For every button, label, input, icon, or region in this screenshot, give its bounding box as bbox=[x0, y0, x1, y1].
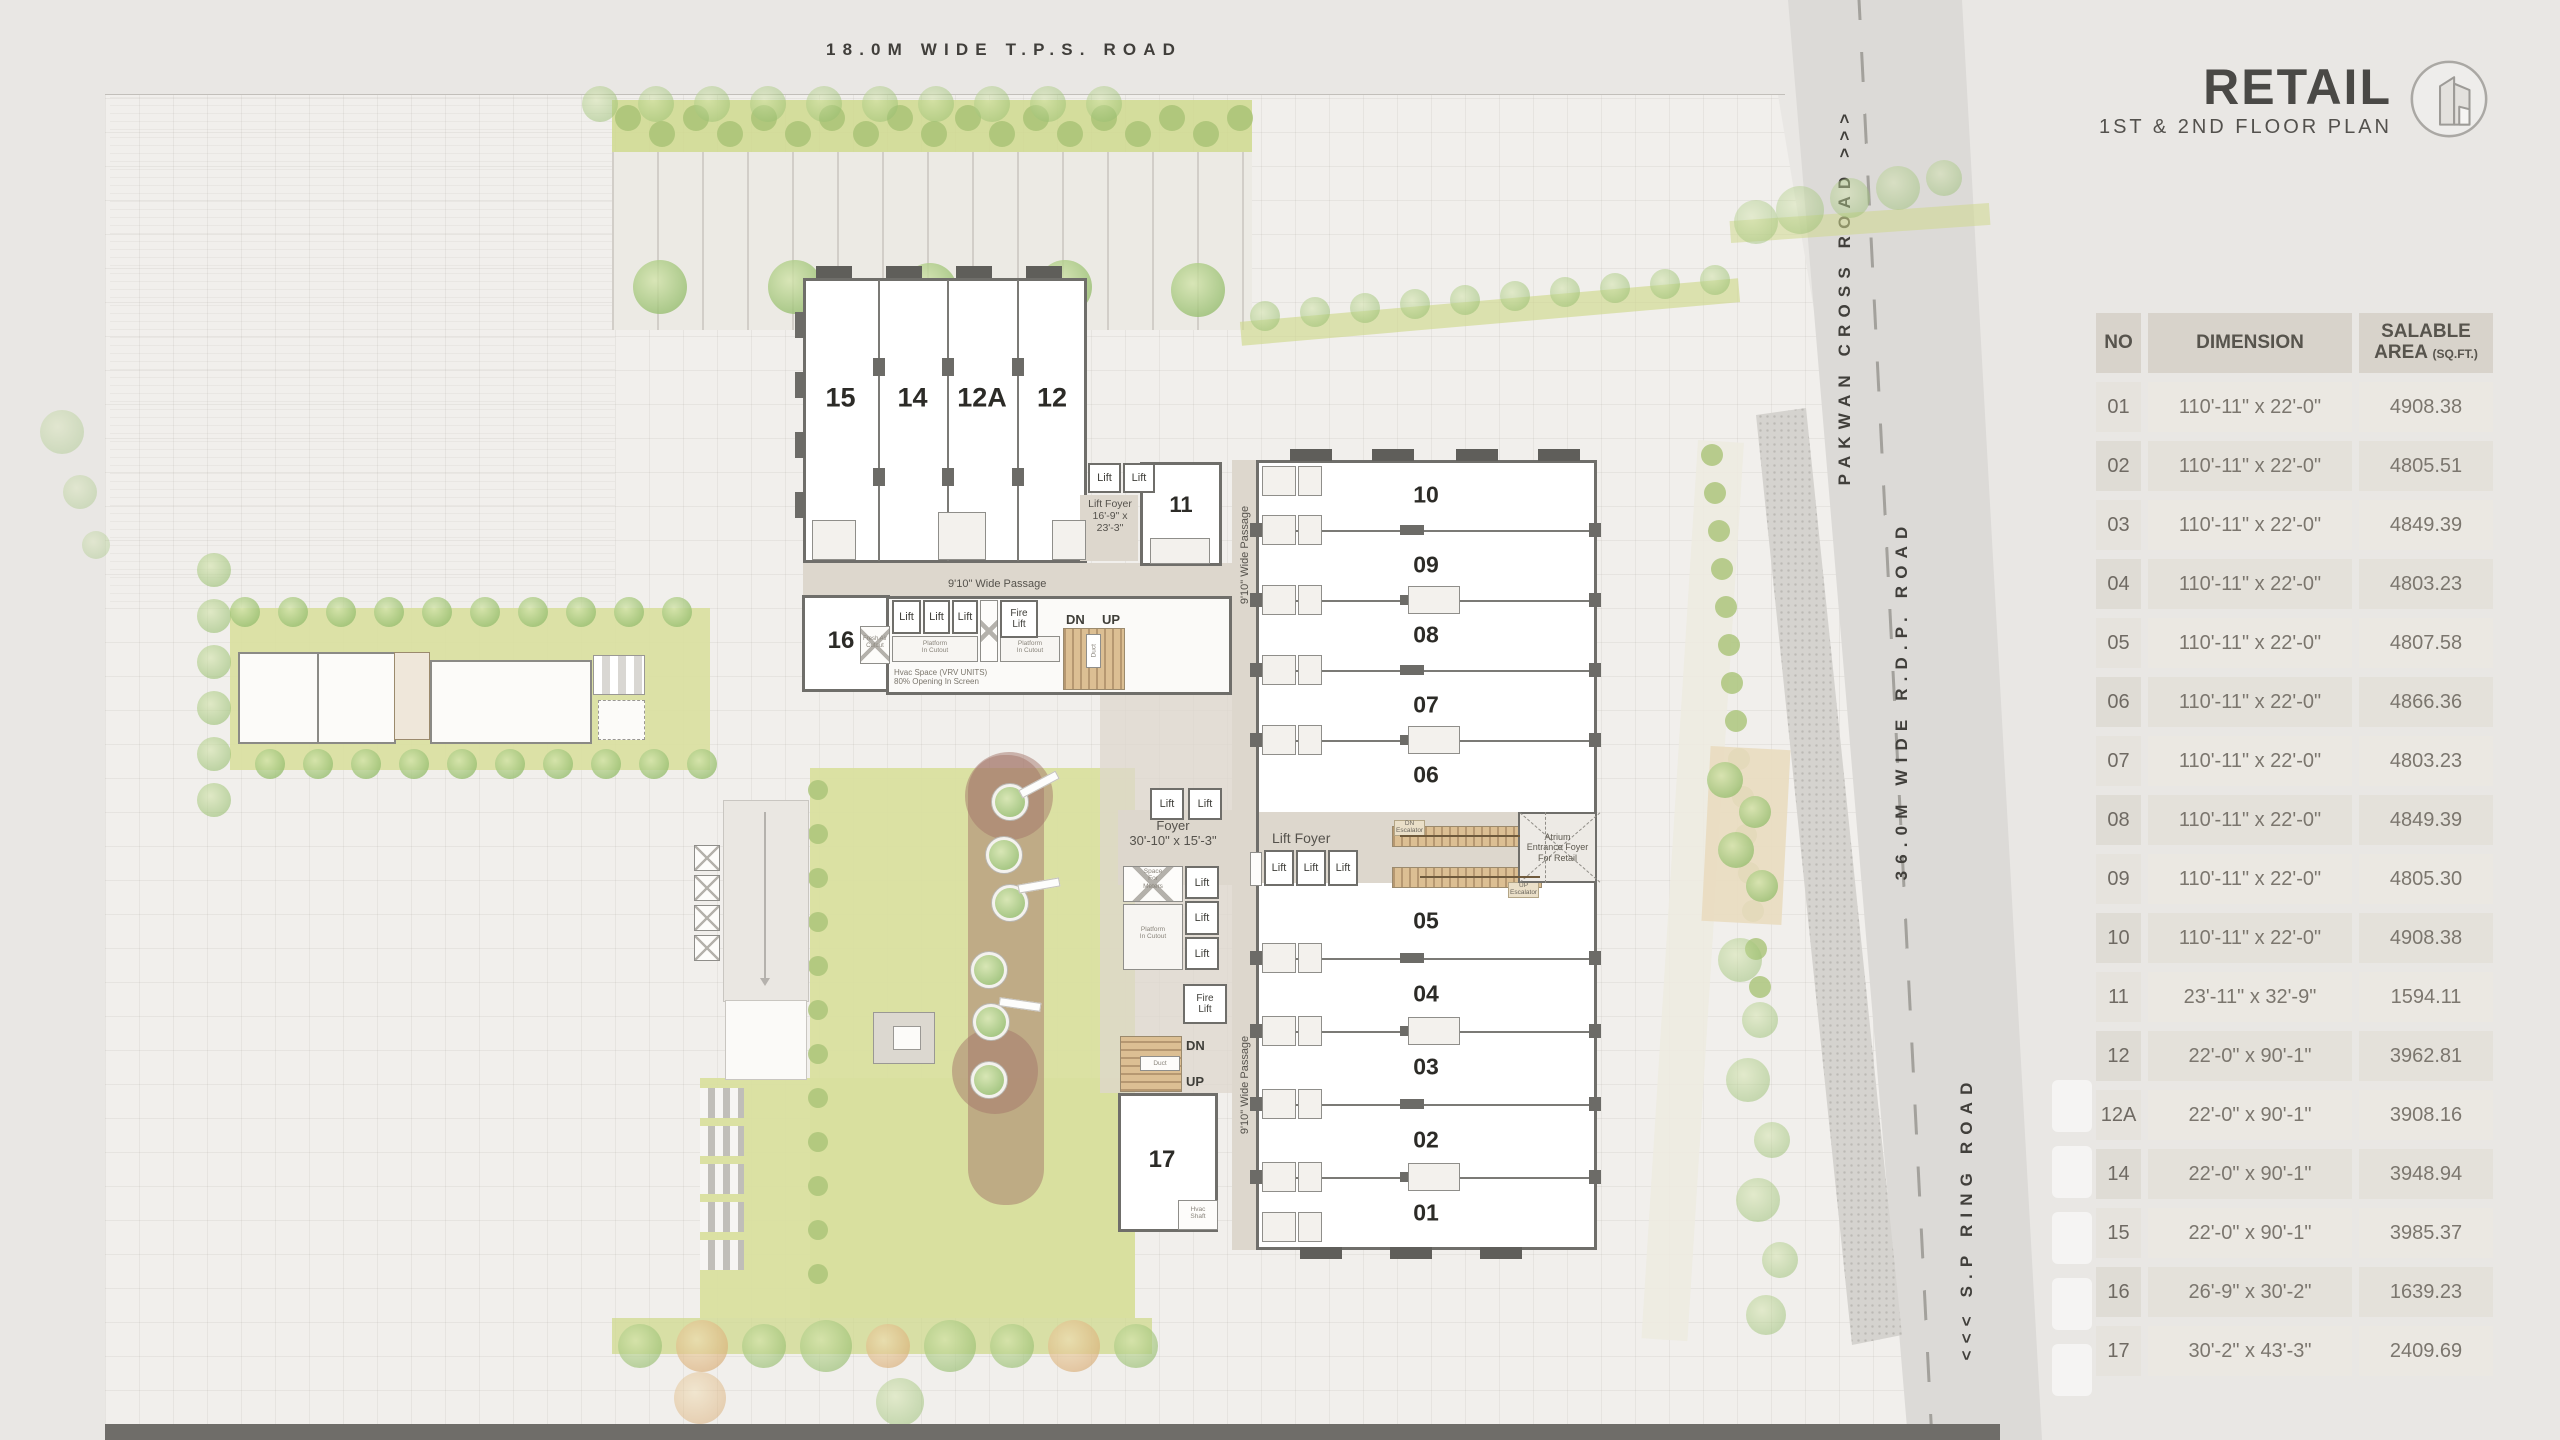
parking-stall-marks bbox=[700, 1240, 744, 1270]
toilet-cluster bbox=[1262, 943, 1296, 973]
cell-area: 4849.39 bbox=[2359, 500, 2493, 550]
bush bbox=[1701, 444, 1723, 466]
tree-orange bbox=[676, 1320, 728, 1372]
cell-area: 3962.81 bbox=[2359, 1031, 2493, 1081]
cell-area: 4908.38 bbox=[2359, 382, 2493, 432]
unit-label-10: 10 bbox=[1413, 482, 1439, 509]
wall-column bbox=[795, 492, 805, 518]
tree bbox=[694, 86, 730, 122]
bush bbox=[1227, 105, 1253, 131]
table-row: 07110'-11" x 22'-0"4803.23 bbox=[2096, 736, 2493, 786]
storefront-awning bbox=[816, 266, 852, 278]
tree bbox=[1718, 938, 1762, 982]
cell-no: 01 bbox=[2096, 382, 2141, 432]
wall-column bbox=[795, 372, 805, 398]
title-block: RETAIL 1ST & 2ND FLOOR PLAN bbox=[2080, 62, 2392, 139]
unit-label-01: 01 bbox=[1413, 1200, 1439, 1227]
unit-label-09: 09 bbox=[1413, 552, 1439, 579]
storefront-awning bbox=[1026, 266, 1062, 278]
toilet-cluster bbox=[1298, 725, 1322, 755]
bush bbox=[785, 121, 811, 147]
toilet-cluster bbox=[1298, 1162, 1322, 1192]
unit-label-14: 14 bbox=[897, 383, 927, 414]
garden-seat bbox=[694, 875, 720, 901]
lift-box: Lift bbox=[1296, 850, 1326, 886]
tree-orange bbox=[866, 1324, 910, 1368]
cell-no: 04 bbox=[2096, 559, 2141, 609]
outbuilding-room-2 bbox=[317, 652, 396, 744]
tree bbox=[1736, 1178, 1780, 1222]
tree bbox=[1030, 86, 1066, 122]
cell-dim: 26'-9" x 30'-2" bbox=[2148, 1267, 2352, 1317]
tree bbox=[750, 86, 786, 122]
column bbox=[1250, 1170, 1262, 1184]
cell-dim: 110'-11" x 22'-0" bbox=[2148, 618, 2352, 668]
column bbox=[873, 468, 885, 486]
cell-dim: 110'-11" x 22'-0" bbox=[2148, 854, 2352, 904]
roadside-parking-mark bbox=[2052, 1212, 2092, 1264]
toilet-cluster bbox=[1298, 943, 1322, 973]
unit-label-08: 08 bbox=[1413, 622, 1439, 649]
cell-dim: 22'-0" x 90'-1" bbox=[2148, 1090, 2352, 1140]
tree bbox=[800, 1320, 852, 1372]
tree bbox=[1171, 263, 1225, 317]
toilet-cluster bbox=[1262, 1162, 1296, 1192]
lift-box: Lift bbox=[1185, 937, 1219, 970]
tree bbox=[1114, 1324, 1158, 1368]
toilet-cluster bbox=[1262, 725, 1296, 755]
unit-label-07: 07 bbox=[1413, 692, 1439, 719]
tree bbox=[990, 1324, 1034, 1368]
cell-dim: 22'-0" x 90'-1" bbox=[2148, 1208, 2352, 1258]
bush bbox=[808, 1132, 828, 1152]
duct-upper-label: Duct bbox=[1090, 639, 1097, 663]
toilet-cluster bbox=[1298, 1089, 1322, 1119]
tree bbox=[862, 86, 898, 122]
outbuilding-room-1 bbox=[238, 652, 319, 744]
unit-label-03: 03 bbox=[1413, 1054, 1439, 1081]
parking-stall-marks bbox=[700, 1126, 744, 1156]
header-area: SALABLE AREA (SQ.FT.) bbox=[2359, 313, 2493, 373]
cell-dim: 110'-11" x 22'-0" bbox=[2148, 677, 2352, 727]
unit-label-05: 05 bbox=[1413, 908, 1439, 935]
toilet-cluster bbox=[1262, 466, 1296, 496]
cell-no: 08 bbox=[2096, 795, 2141, 845]
passage-label-h: 9'10" Wide Passage bbox=[948, 578, 1046, 590]
cell-area: 4866.36 bbox=[2359, 677, 2493, 727]
table-row: 03110'-11" x 22'-0"4849.39 bbox=[2096, 500, 2493, 550]
tree bbox=[1718, 832, 1754, 868]
bush bbox=[989, 121, 1015, 147]
foyer-label: Foyer 30'-10" x 15'-3" bbox=[1108, 818, 1238, 848]
column bbox=[1589, 733, 1601, 747]
tree bbox=[1776, 186, 1824, 234]
cell-area: 3985.37 bbox=[2359, 1208, 2493, 1258]
cell-area: 4805.51 bbox=[2359, 441, 2493, 491]
cell-dim: 22'-0" x 90'-1" bbox=[2148, 1031, 2352, 1081]
platform-label-1: Platform In Cutout bbox=[900, 640, 970, 655]
tree bbox=[989, 840, 1019, 870]
toilet-cluster bbox=[1408, 1163, 1460, 1191]
tree bbox=[614, 597, 644, 627]
column bbox=[1250, 523, 1262, 537]
lift-box: Lift bbox=[1188, 788, 1222, 820]
lift-box: Lift bbox=[952, 600, 978, 634]
tree bbox=[662, 597, 692, 627]
bush bbox=[1725, 710, 1747, 732]
toilet-cluster bbox=[1262, 515, 1296, 545]
tree bbox=[742, 1324, 786, 1368]
lift-box: Lift bbox=[1185, 866, 1219, 899]
toilet-cluster bbox=[1298, 1016, 1322, 1046]
wall-column bbox=[795, 312, 805, 338]
toilet-cluster bbox=[1298, 655, 1322, 685]
column bbox=[873, 358, 885, 376]
lift-foyer-label: Lift Foyer bbox=[1272, 830, 1330, 846]
header-no: NO bbox=[2096, 313, 2141, 373]
tree bbox=[447, 749, 477, 779]
cell-dim: 22'-0" x 90'-1" bbox=[2148, 1149, 2352, 1199]
header-dimension: DIMENSION bbox=[2148, 313, 2352, 373]
bush bbox=[1715, 596, 1737, 618]
table-row: 10110'-11" x 22'-0"4908.38 bbox=[2096, 913, 2493, 963]
bush bbox=[1193, 121, 1219, 147]
cell-dim: 110'-11" x 22'-0" bbox=[2148, 441, 2352, 491]
column bbox=[1589, 663, 1601, 677]
storefront-awning bbox=[1290, 449, 1332, 461]
tree bbox=[303, 749, 333, 779]
page-title: RETAIL bbox=[2080, 62, 2392, 112]
column bbox=[1589, 1097, 1601, 1111]
table-row: 1123'-11" x 32'-9"1594.11 bbox=[2096, 972, 2493, 1022]
tree bbox=[63, 475, 97, 509]
tree bbox=[197, 553, 231, 587]
cell-dim: 110'-11" x 22'-0" bbox=[2148, 559, 2352, 609]
column bbox=[1589, 593, 1601, 607]
storefront-awning bbox=[1372, 449, 1414, 461]
tree bbox=[618, 1324, 662, 1368]
table-row: 12A22'-0" x 90'-1"3908.16 bbox=[2096, 1090, 2493, 1140]
road-label-tps: 18.0M WIDE T.P.S. ROAD bbox=[826, 40, 1182, 60]
bush bbox=[615, 105, 641, 131]
lift-box: Lift bbox=[1185, 901, 1219, 935]
bush bbox=[808, 1176, 828, 1196]
bush bbox=[808, 1044, 828, 1064]
column bbox=[1589, 1024, 1601, 1038]
cell-area: 2409.69 bbox=[2359, 1326, 2493, 1376]
column bbox=[1250, 1024, 1262, 1038]
tree bbox=[1350, 293, 1380, 323]
column bbox=[1589, 951, 1601, 965]
bush bbox=[808, 780, 828, 800]
tree bbox=[518, 597, 548, 627]
table-body: 01110'-11" x 22'-0"4908.3802110'-11" x 2… bbox=[2096, 382, 2493, 1376]
passage-label-v1: 9'10" Wide Passage bbox=[1239, 506, 1251, 604]
bush bbox=[808, 956, 828, 976]
tree bbox=[1746, 1295, 1786, 1335]
cell-area: 3948.94 bbox=[2359, 1149, 2493, 1199]
cell-dim: 110'-11" x 22'-0" bbox=[2148, 500, 2352, 550]
column bbox=[1589, 523, 1601, 537]
paving-texture bbox=[110, 97, 615, 602]
fire-shaft-box bbox=[1250, 852, 1262, 886]
garden-seat bbox=[694, 845, 720, 871]
cell-area: 4805.30 bbox=[2359, 854, 2493, 904]
parking-stall-marks bbox=[700, 1088, 744, 1118]
table-row: 02110'-11" x 22'-0"4805.51 bbox=[2096, 441, 2493, 491]
lift-box: Lift bbox=[1150, 788, 1184, 820]
column bbox=[1400, 525, 1424, 535]
outbuilding-louvers bbox=[593, 655, 645, 695]
cell-no: 10 bbox=[2096, 913, 2141, 963]
unit-label-06: 06 bbox=[1413, 762, 1439, 789]
column bbox=[1250, 593, 1262, 607]
cell-no: 15 bbox=[2096, 1208, 2141, 1258]
escalator-up-label: UP Escalator bbox=[1508, 882, 1539, 898]
stair-lower-up: UP bbox=[1186, 1074, 1204, 1089]
lift-box: Lift bbox=[1328, 850, 1358, 886]
tree bbox=[197, 599, 231, 633]
bush bbox=[1749, 976, 1771, 998]
tree bbox=[1762, 1242, 1798, 1278]
unit-label-15: 15 bbox=[825, 383, 855, 414]
unit-divider bbox=[1017, 280, 1019, 561]
table-row: 06110'-11" x 22'-0"4866.36 bbox=[2096, 677, 2493, 727]
toilet-cluster bbox=[1408, 1017, 1460, 1045]
tree bbox=[974, 955, 1004, 985]
toilet-cluster bbox=[1262, 655, 1296, 685]
table-row: 08110'-11" x 22'-0"4849.39 bbox=[2096, 795, 2493, 845]
cell-no: 12A bbox=[2096, 1090, 2141, 1140]
tree bbox=[633, 260, 687, 314]
tree bbox=[278, 597, 308, 627]
pool-deck bbox=[723, 800, 809, 1002]
toilet-cluster bbox=[1408, 726, 1460, 754]
unit-label-12: 12 bbox=[1037, 383, 1067, 414]
toilet-cluster bbox=[1150, 538, 1210, 564]
tree bbox=[687, 749, 717, 779]
column bbox=[1400, 953, 1424, 963]
tree bbox=[1734, 200, 1778, 244]
site-south-boundary bbox=[105, 1424, 2000, 1440]
stair-lower-dn: DN bbox=[1186, 1038, 1205, 1053]
storefront-awning bbox=[1300, 1247, 1342, 1259]
unit-label-17: 17 bbox=[1149, 1146, 1176, 1174]
table-row: 1422'-0" x 90'-1"3948.94 bbox=[2096, 1149, 2493, 1199]
lift-box: Lift bbox=[1088, 463, 1121, 493]
tree bbox=[638, 86, 674, 122]
cell-no: 03 bbox=[2096, 500, 2141, 550]
tree bbox=[1086, 86, 1122, 122]
toilet-cluster bbox=[1298, 585, 1322, 615]
tree bbox=[806, 86, 842, 122]
bush bbox=[808, 868, 828, 888]
column bbox=[1589, 1170, 1601, 1184]
tree bbox=[1746, 870, 1778, 902]
tree-orange bbox=[674, 1372, 726, 1424]
tree bbox=[197, 783, 231, 817]
toilet-cluster bbox=[1262, 1016, 1296, 1046]
tree bbox=[1700, 265, 1730, 295]
column bbox=[1400, 665, 1424, 675]
storefront-awning bbox=[1480, 1247, 1522, 1259]
storefront-awning bbox=[1456, 449, 1498, 461]
road-label-rdp: 36.0M WIDE R.D.P. ROAD bbox=[1892, 520, 1912, 881]
table-row: 04110'-11" x 22'-0"4803.23 bbox=[2096, 559, 2493, 609]
building-icon bbox=[2408, 58, 2490, 140]
toilet-cluster bbox=[1262, 585, 1296, 615]
storefront-awning bbox=[956, 266, 992, 278]
page-subtitle: 1ST & 2ND FLOOR PLAN bbox=[2080, 116, 2392, 139]
parking-stall-marks bbox=[700, 1202, 744, 1232]
tree bbox=[374, 597, 404, 627]
tree bbox=[639, 749, 669, 779]
bush bbox=[808, 1000, 828, 1020]
tree bbox=[1742, 1002, 1778, 1038]
cell-area: 1594.11 bbox=[2359, 972, 2493, 1022]
atrium-label: Atrium Entrance Foyer For Retail bbox=[1518, 832, 1597, 863]
lift-foyer-dim-label: Lift Foyer 16'-9" x 23'-3" bbox=[1080, 498, 1140, 534]
table-header-row: NO DIMENSION SALABLE AREA (SQ.FT.) bbox=[2096, 313, 2493, 373]
hvac-shaft-label: Hvac Shaft bbox=[1178, 1206, 1218, 1221]
column bbox=[1250, 733, 1262, 747]
tree bbox=[1754, 1122, 1790, 1158]
toilet-cluster bbox=[1052, 520, 1086, 560]
table-row: 1522'-0" x 90'-1"3985.37 bbox=[2096, 1208, 2493, 1258]
tree bbox=[1300, 297, 1330, 327]
cell-no: 02 bbox=[2096, 441, 2141, 491]
tree bbox=[197, 691, 231, 725]
bush bbox=[921, 121, 947, 147]
tree bbox=[566, 597, 596, 627]
stair-upper-up: UP bbox=[1102, 612, 1120, 627]
unit-label-16: 16 bbox=[828, 627, 855, 655]
retail-floor-plan-sheet: 18.0M WIDE T.P.S. ROAD PAKWAN CROSS ROAD… bbox=[0, 0, 2560, 1440]
pool-deck-arrow bbox=[760, 978, 770, 986]
cell-dim: 110'-11" x 22'-0" bbox=[2148, 736, 2352, 786]
cell-area: 3908.16 bbox=[2359, 1090, 2493, 1140]
stair-upper-dn: DN bbox=[1066, 612, 1085, 627]
toilet-cluster bbox=[1298, 1212, 1322, 1242]
tree bbox=[326, 597, 356, 627]
cell-no: 16 bbox=[2096, 1267, 2141, 1317]
cell-no: 06 bbox=[2096, 677, 2141, 727]
toilet-cluster bbox=[1262, 1089, 1296, 1119]
outbuilding-room-4 bbox=[598, 700, 645, 740]
column bbox=[1250, 1097, 1262, 1111]
unit-label-04: 04 bbox=[1413, 981, 1439, 1008]
toilet-cluster bbox=[1298, 515, 1322, 545]
column bbox=[1012, 358, 1024, 376]
tree bbox=[495, 749, 525, 779]
tree bbox=[591, 749, 621, 779]
lift-box: Lift bbox=[1123, 463, 1155, 493]
tree bbox=[1830, 178, 1870, 218]
bush bbox=[808, 1220, 828, 1240]
lift-box: Lift bbox=[923, 600, 950, 634]
hvac-label: Hvac Space (VRV UNITS) 80% Opening In Sc… bbox=[880, 668, 1054, 686]
roadside-parking-mark bbox=[2052, 1344, 2092, 1396]
platform-label-2: Platform In Cutout bbox=[1004, 640, 1056, 655]
toilet-cluster bbox=[938, 512, 986, 560]
tree bbox=[422, 597, 452, 627]
tree bbox=[582, 86, 618, 122]
tree bbox=[1707, 762, 1743, 798]
tree bbox=[1500, 281, 1530, 311]
cell-dim: 110'-11" x 22'-0" bbox=[2148, 795, 2352, 845]
bush bbox=[808, 1088, 828, 1108]
cell-area: 4803.23 bbox=[2359, 736, 2493, 786]
cell-area: 4807.58 bbox=[2359, 618, 2493, 668]
roadside-parking-mark bbox=[2052, 1080, 2092, 1132]
passage-label-v2: 9'10" Wide Passage bbox=[1239, 1036, 1251, 1134]
column bbox=[942, 468, 954, 486]
tree bbox=[1876, 166, 1920, 210]
cell-no: 12 bbox=[2096, 1031, 2141, 1081]
escalator-arrow bbox=[1420, 876, 1540, 878]
outbuilding-room-3 bbox=[430, 660, 592, 744]
tree bbox=[197, 645, 231, 679]
table-row: 05110'-11" x 22'-0"4807.58 bbox=[2096, 618, 2493, 668]
bush bbox=[1718, 634, 1740, 656]
bush bbox=[717, 121, 743, 147]
tree bbox=[543, 749, 573, 779]
fire-lift-box: Fire Lift bbox=[1183, 984, 1227, 1024]
tree bbox=[976, 1007, 1006, 1037]
table-row: 1222'-0" x 90'-1"3962.81 bbox=[2096, 1031, 2493, 1081]
storefront-awning bbox=[1390, 1247, 1432, 1259]
pool bbox=[725, 1000, 807, 1080]
road-label-ring: <<< S.P RING ROAD bbox=[1957, 1076, 1977, 1361]
tree bbox=[470, 597, 500, 627]
bush bbox=[1708, 520, 1730, 542]
tree bbox=[1250, 301, 1280, 331]
tree bbox=[974, 86, 1010, 122]
column bbox=[1400, 1099, 1424, 1109]
garden-seat bbox=[694, 905, 720, 931]
tree bbox=[918, 86, 954, 122]
salable-area-table: NO DIMENSION SALABLE AREA (SQ.FT.) 01110… bbox=[2096, 313, 2493, 1385]
bush bbox=[853, 121, 879, 147]
cell-dim: 110'-11" x 22'-0" bbox=[2148, 913, 2352, 963]
lift-box: Lift bbox=[1264, 850, 1294, 886]
cell-dim: 23'-11" x 32'-9" bbox=[2148, 972, 2352, 1022]
tree bbox=[1739, 796, 1771, 828]
duct-lower-label: Duct bbox=[1146, 1060, 1174, 1067]
atrium-dashed-edge bbox=[1545, 812, 1547, 883]
parking-stall-marks bbox=[700, 1164, 744, 1194]
bush bbox=[1159, 105, 1185, 131]
table-row: 09110'-11" x 22'-0"4805.30 bbox=[2096, 854, 2493, 904]
outbuilding-stair bbox=[394, 652, 430, 740]
roadside-parking-mark bbox=[2052, 1146, 2092, 1198]
tree bbox=[1550, 277, 1580, 307]
fire-lift-box: Fire Lift bbox=[1000, 600, 1038, 638]
cell-area: 4908.38 bbox=[2359, 913, 2493, 963]
toilet-cluster bbox=[1408, 586, 1460, 614]
escalator-dn-label: DN Escalator bbox=[1394, 820, 1425, 836]
toilet-cluster bbox=[1262, 1212, 1296, 1242]
tree bbox=[230, 597, 260, 627]
pool-deck-axis bbox=[764, 812, 766, 980]
tree bbox=[1650, 269, 1680, 299]
tree bbox=[974, 1065, 1004, 1095]
cell-area: 4849.39 bbox=[2359, 795, 2493, 845]
tree bbox=[924, 1320, 976, 1372]
bush bbox=[1125, 121, 1151, 147]
unit-divider bbox=[878, 280, 880, 561]
tree bbox=[1400, 289, 1430, 319]
